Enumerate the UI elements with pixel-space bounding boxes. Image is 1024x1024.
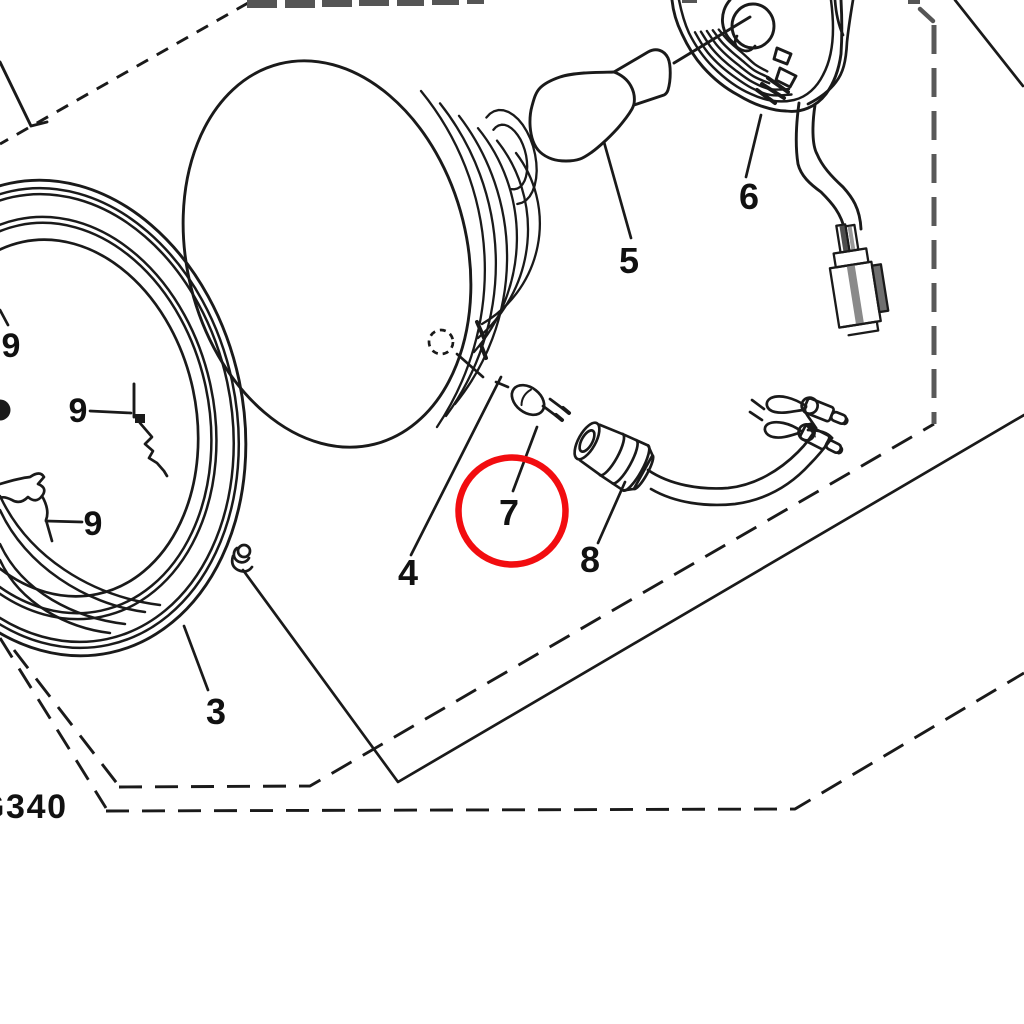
svg-text:G340: G340	[0, 788, 66, 826]
svg-text:6: 6	[739, 176, 759, 217]
svg-text:3: 3	[206, 691, 226, 732]
svg-text:9: 9	[84, 505, 103, 543]
svg-text:7: 7	[499, 492, 519, 533]
svg-text:5: 5	[619, 240, 639, 281]
svg-text:4: 4	[398, 552, 418, 593]
svg-text:8: 8	[580, 539, 600, 580]
svg-text:9: 9	[2, 327, 21, 365]
svg-text:9: 9	[69, 392, 88, 430]
